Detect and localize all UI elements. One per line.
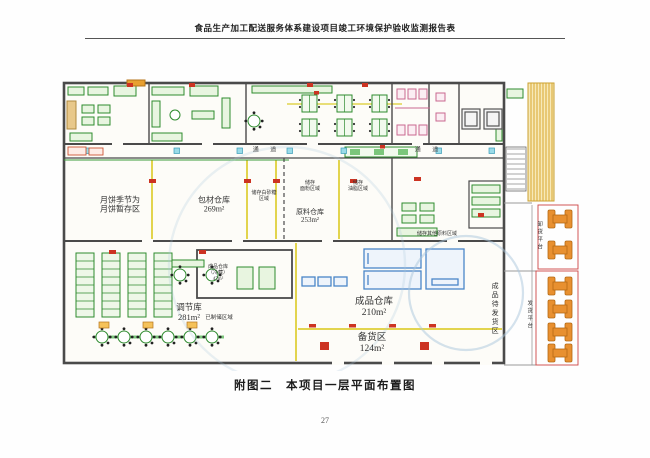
label-raw-name: 原料仓库: [296, 208, 324, 216]
tan-cabinet: [67, 101, 76, 129]
label-packaging-warehouse: 包材仓库 269m²: [198, 196, 230, 215]
page-number: 27: [0, 416, 650, 425]
label-oil-zone: 储存 油脂区域: [348, 181, 368, 193]
label-finished-cold-area: 47m²: [208, 277, 228, 283]
label-stored-zone: 已制储区域: [205, 315, 233, 321]
label-finished-warehouse: 成品仓库 210m²: [355, 297, 393, 319]
figure-caption: 附图二 本项目一层平面布置图: [0, 377, 650, 393]
label-adjust-name: 调节库: [176, 302, 202, 312]
label-mooncake-line2: 月饼暂存区: [100, 205, 140, 214]
document-header: 食品生产加工配送服务体系建设项目竣工环境保护验收监测报告表: [0, 22, 650, 34]
label-flour-line2: 面粉区域: [300, 187, 320, 193]
label-awaiting-shipment-zone: 成品待发货区: [491, 282, 499, 336]
floor-plan-figure: 通 道 通 道 月饼季节为 月饼暂存区 包材仓库 269m² 储存白砂糖区域 储…: [52, 53, 580, 371]
corridor-red-boxes: [68, 147, 103, 155]
label-raw-warehouse: 原料仓库 253m²: [296, 208, 324, 225]
label-finished-cold-room: 成品仓库 （冷藏） 47m²: [208, 265, 228, 283]
label-sugar-zone: 储存白砂糖区域: [250, 191, 278, 203]
truck-icon: [548, 277, 572, 295]
document-page: 食品生产加工配送服务体系建设项目竣工环境保护验收监测报告表: [0, 0, 650, 458]
label-packaging-name: 包材仓库: [198, 196, 230, 205]
ramp-hatch: [528, 83, 554, 201]
truck-icon: [548, 323, 572, 341]
label-finished-area: 210m²: [355, 308, 393, 319]
truck-icon: [548, 300, 572, 318]
truck-icon: [548, 344, 572, 362]
stairs: [506, 147, 526, 191]
truck-icon: [548, 210, 572, 228]
label-packaging-area: 269m²: [198, 205, 230, 214]
label-adjust-area: 281m²: [176, 312, 202, 322]
label-finished-cold-line2: （冷藏）: [208, 271, 228, 277]
label-stock-zone: 备货区 124m²: [358, 333, 387, 355]
truck-icon: [548, 241, 572, 259]
loading-docks: [536, 205, 578, 365]
label-raw-area: 253m²: [296, 216, 324, 224]
label-corridor-right: 通 道: [415, 147, 444, 154]
label-finished-name: 成品仓库: [355, 297, 393, 308]
header-divider: [85, 38, 565, 39]
label-corridor-left: 通 道: [253, 147, 282, 154]
label-stock-area: 124m²: [358, 344, 387, 355]
label-stock-name: 备货区: [358, 333, 387, 344]
label-oil-line2: 油脂区域: [348, 187, 368, 193]
label-adjust-warehouse: 调节库 281m²: [176, 302, 202, 322]
label-mooncake-zone: 月饼季节为 月饼暂存区: [100, 196, 140, 215]
label-other-raw-zone: 储存其他原料区域: [417, 232, 457, 238]
label-flour-zone: 储存 面粉区域: [300, 181, 320, 193]
label-unloading-platform: 卸货平台: [536, 221, 542, 251]
label-shipping-platform: 发货平台: [526, 300, 532, 330]
